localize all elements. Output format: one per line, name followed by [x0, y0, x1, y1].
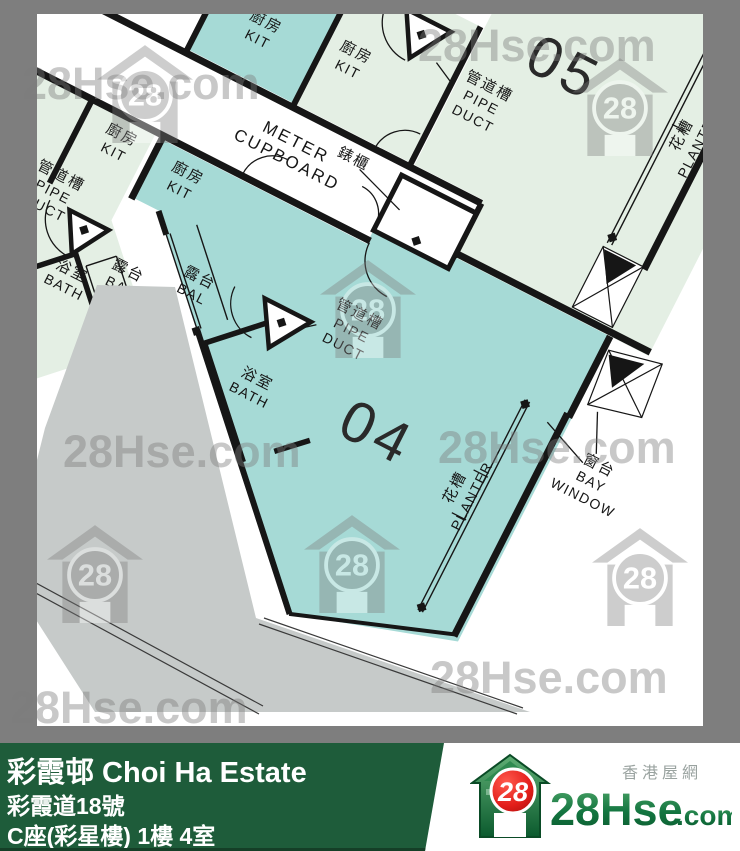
- brand-logo-28hse: 28 28Hse .com 香港屋網: [470, 751, 732, 847]
- brand-name-suffix: .com: [676, 800, 732, 831]
- brand-tagline: 香港屋網: [622, 759, 702, 783]
- estate-name: 彩霞邨 Choi Ha Estate: [7, 749, 307, 791]
- block-floor-unit: C座(彩星樓) 1樓 4室: [7, 817, 215, 851]
- footer-bar: 彩霞邨 Choi Ha Estate 彩霞道18號 C座(彩星樓) 1樓 4室: [0, 743, 740, 851]
- brand-house-icon: 28: [472, 755, 548, 837]
- footer-green-band: 彩霞邨 Choi Ha Estate 彩霞道18號 C座(彩星樓) 1樓 4室: [0, 743, 470, 851]
- brand-name-main: 28Hse: [550, 784, 683, 835]
- screenshot-stage: 廚房 KIT 廚房 KIT METER CUPBOARD 錶櫃 管道槽 PI: [0, 0, 740, 851]
- label-bay-window: 窗台 BAY WINDOW: [548, 441, 635, 520]
- floorplan-image: 廚房 KIT 廚房 KIT METER CUPBOARD 錶櫃 管道槽 PI: [37, 14, 703, 726]
- brand-circle-number: 28: [497, 777, 528, 807]
- estate-address: 彩霞道18號: [7, 787, 125, 821]
- floorplan-svg: 廚房 KIT 廚房 KIT METER CUPBOARD 錶櫃 管道槽 PI: [37, 14, 703, 726]
